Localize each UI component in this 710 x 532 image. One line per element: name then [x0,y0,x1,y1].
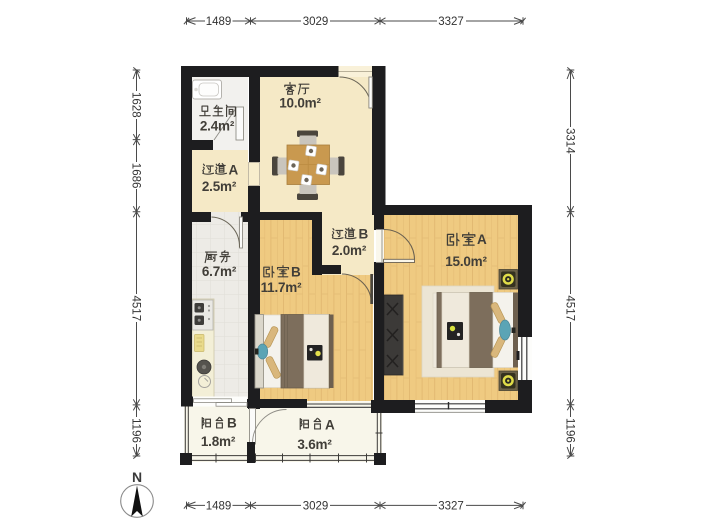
svg-text:2.0m²: 2.0m² [332,243,367,258]
svg-text:B: B [291,265,301,280]
svg-text:1489: 1489 [206,16,232,28]
svg-text:3.6m²: 3.6m² [297,437,332,452]
svg-text:1196: 1196 [130,418,142,443]
svg-text:1489: 1489 [206,500,232,512]
svg-text:3029: 3029 [303,16,329,28]
svg-text:A: A [229,163,239,178]
svg-text:11.7m²: 11.7m² [261,280,303,295]
svg-text:10.0m²: 10.0m² [279,96,321,111]
svg-text:A: A [477,232,487,247]
svg-text:1686: 1686 [130,163,142,189]
svg-text:4517: 4517 [130,296,142,322]
svg-text:3327: 3327 [438,500,464,512]
svg-text:3314: 3314 [564,128,576,154]
svg-text:B: B [227,416,237,431]
svg-text:4517: 4517 [564,295,576,321]
svg-text:2.5m²: 2.5m² [202,179,237,194]
svg-text:3029: 3029 [303,500,329,512]
svg-text:A: A [325,418,335,433]
svg-text:1.8m²: 1.8m² [201,434,236,449]
svg-text:15.0m²: 15.0m² [445,254,487,269]
svg-text:6.7m²: 6.7m² [202,264,237,279]
svg-text:1196: 1196 [564,418,576,443]
svg-text:B: B [359,227,369,242]
svg-text:N: N [132,469,142,485]
svg-text:2.4m²: 2.4m² [200,119,235,134]
svg-text:3327: 3327 [438,16,464,28]
svg-text:1628: 1628 [130,92,142,118]
